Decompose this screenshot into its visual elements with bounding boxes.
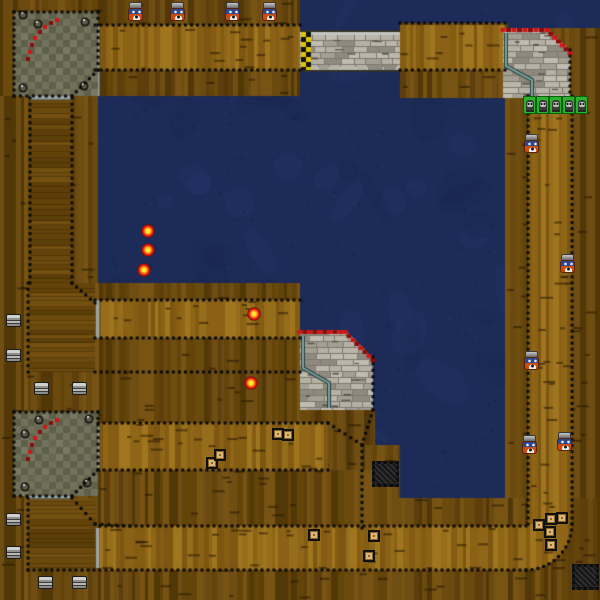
crate [214, 449, 226, 461]
spectator-sprite [262, 2, 277, 22]
item-orb [141, 224, 155, 238]
barrel [6, 314, 21, 327]
crate [368, 530, 380, 542]
spectator-sprite [524, 351, 539, 371]
crate [545, 539, 557, 551]
creature-sprite [523, 96, 536, 114]
crate [544, 526, 556, 538]
spectator-sprite [560, 254, 575, 274]
crate [363, 550, 375, 562]
crate [556, 512, 568, 524]
barrel [34, 382, 49, 395]
item-orb [137, 263, 151, 277]
barrel [6, 546, 21, 559]
item-orb [141, 243, 155, 257]
spectator-sprite [128, 2, 143, 22]
crate [308, 529, 320, 541]
creature-sprite [575, 96, 588, 114]
creature-sprite [549, 96, 562, 114]
barrel [72, 576, 87, 589]
spectator-sprite [524, 134, 539, 154]
barrel [6, 513, 21, 526]
spectator-sprite [225, 2, 240, 22]
creature-sprite [562, 96, 575, 114]
drain-grate [572, 564, 599, 590]
spectator-sprite [557, 432, 572, 452]
map-objects-layer [0, 0, 600, 600]
barrel [6, 349, 21, 362]
barrel [38, 576, 53, 589]
creature-sprite [536, 96, 549, 114]
item-orb [244, 376, 258, 390]
spectator-sprite [522, 435, 537, 455]
spectator-sprite [170, 2, 185, 22]
item-orb [247, 307, 261, 321]
game-map[interactable] [0, 0, 600, 600]
drain-grate [372, 461, 399, 487]
crate [282, 429, 294, 441]
barrel [72, 382, 87, 395]
